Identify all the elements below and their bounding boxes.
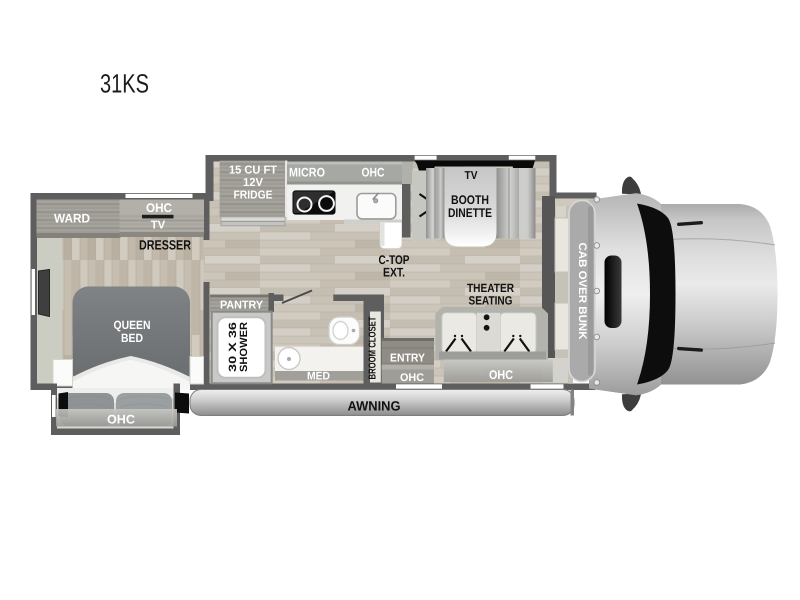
svg-text:TV: TV	[151, 220, 166, 232]
svg-text:CAB OVER BUNK: CAB OVER BUNK	[576, 243, 588, 340]
svg-text:SEATING: SEATING	[469, 294, 513, 308]
svg-text:BED: BED	[121, 331, 143, 345]
svg-text:12V: 12V	[243, 177, 263, 189]
svg-text:BOOTH: BOOTH	[451, 193, 489, 207]
svg-text:31KS: 31KS	[100, 69, 149, 99]
svg-text:MED: MED	[307, 371, 330, 383]
svg-text:TV: TV	[465, 170, 478, 182]
svg-text:QUEEN: QUEEN	[114, 318, 151, 332]
svg-text:WARD: WARD	[54, 212, 90, 226]
svg-text:DINETTE: DINETTE	[448, 206, 492, 220]
svg-text:MICRO: MICRO	[289, 166, 325, 180]
svg-text:EXT.: EXT.	[383, 266, 405, 280]
svg-text:FRIDGE: FRIDGE	[234, 190, 273, 202]
svg-text:DRESSER: DRESSER	[139, 238, 191, 253]
svg-text:ENTRY: ENTRY	[390, 353, 425, 365]
svg-text:SHOWER: SHOWER	[238, 322, 250, 372]
svg-text:OHC: OHC	[489, 368, 513, 382]
svg-text:BROOM CLOSET: BROOM CLOSET	[368, 317, 379, 380]
svg-text:PANTRY: PANTRY	[220, 300, 263, 312]
svg-text:AWNING: AWNING	[348, 399, 401, 414]
svg-text:OHC: OHC	[400, 372, 424, 384]
svg-text:OHC: OHC	[146, 201, 172, 215]
svg-text:15 CU FT: 15 CU FT	[229, 165, 277, 177]
svg-text:OHC: OHC	[362, 166, 385, 180]
svg-text:OHC: OHC	[107, 413, 135, 427]
